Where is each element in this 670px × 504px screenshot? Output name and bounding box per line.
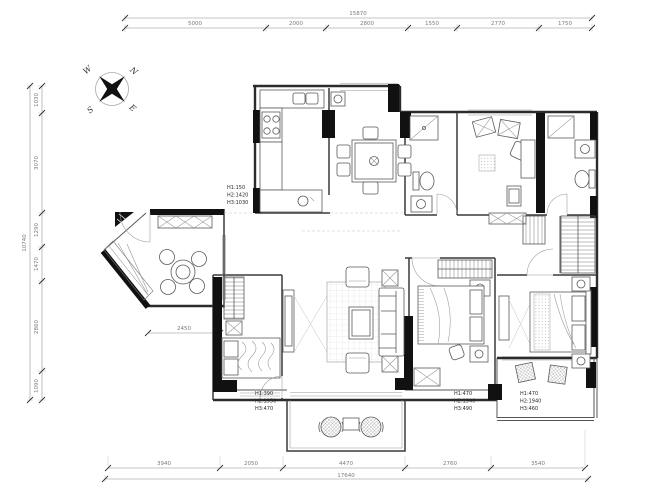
fridge-icon	[331, 92, 345, 106]
rug	[479, 155, 495, 171]
dim-top-seg1: 2000	[289, 21, 303, 27]
pillow	[470, 290, 482, 314]
dim-left-seg5: 1090	[34, 379, 40, 393]
rattan-chair	[321, 417, 341, 437]
headboard	[586, 290, 591, 354]
round-table	[171, 260, 195, 284]
blanket	[534, 294, 550, 350]
dim-top-seg4: 2770	[491, 21, 505, 27]
annotation-kitchen-l1: H1:150	[227, 185, 245, 191]
dim-left-seg2: 1290	[34, 223, 40, 237]
annotation-kitchen-l3: H3:1030	[227, 200, 248, 206]
bottom-dimension-chain: 17640 3940 2050 4470 2760 3540	[102, 430, 591, 482]
annotation-bedroom2-l2: H2:1940	[454, 399, 475, 405]
room-bedroom1	[222, 277, 294, 398]
desk	[521, 140, 535, 178]
coffee-table	[349, 307, 373, 339]
floor-plan-page: 15870 5000 2000 2800 1550 2770 1750 1074…	[0, 0, 670, 504]
annotation-master-l1: H1:470	[520, 391, 538, 397]
room-bathroom-right	[547, 116, 595, 214]
room-study	[472, 117, 535, 224]
blanket-fringe	[418, 288, 424, 342]
dim-bottom-seg2: 4470	[339, 461, 353, 467]
small-table	[343, 418, 359, 430]
nightstand	[572, 277, 590, 291]
cushion	[548, 365, 567, 384]
room-master	[499, 277, 591, 368]
dim-left-seg4: 2860	[34, 320, 40, 334]
compass-north-label: N	[127, 65, 140, 78]
chair	[160, 250, 175, 265]
pillow	[224, 341, 238, 357]
dim-top-seg3: 1550	[425, 21, 439, 27]
annotation-bedroom1-l1: H1:390	[255, 391, 273, 397]
dim-bottom-seg0: 3940	[157, 461, 171, 467]
dim-left-seg3: 1470	[34, 257, 40, 271]
left-dimension-chain: 10740 1030 3070 1290 1470 2860 1090	[22, 83, 46, 403]
dim-bottom-total: 17640	[337, 473, 355, 479]
annotation-master-l3: H3:460	[520, 406, 538, 412]
room-center-balcony	[319, 417, 383, 437]
cushion	[515, 362, 535, 382]
door-arc	[547, 194, 567, 214]
linen-cabinet	[523, 216, 545, 244]
dim-balcony-width: 2450	[177, 326, 191, 332]
dim-top-seg2: 2800	[360, 21, 374, 27]
annotation-bedroom1-l2: H2:1950	[255, 399, 276, 405]
dim-top-seg0: 5000	[188, 21, 202, 27]
compass-west-label: W	[81, 63, 94, 76]
compass-star-icon	[99, 76, 124, 101]
dim-left-seg0: 1030	[34, 93, 40, 107]
dining-chair	[337, 145, 350, 158]
compass: W N S E	[81, 63, 140, 115]
top-dimension-chain: 15870 5000 2000 2800 1550 2770 1750	[122, 11, 595, 32]
annotation-kitchen-l2: H2:1420	[227, 193, 248, 199]
toilet-icon	[413, 172, 419, 190]
compass-east-label: E	[127, 102, 138, 113]
room-balcony-left	[104, 212, 212, 300]
master-door-arc	[527, 249, 553, 275]
pillow	[572, 296, 585, 321]
sofa	[379, 288, 404, 356]
nightstand	[470, 346, 488, 362]
dim-bottom-seg4: 3540	[531, 461, 545, 467]
tv-cabinet	[499, 296, 509, 340]
balcony-width-dimension: 2450	[145, 326, 223, 336]
dim-left-seg1: 3070	[34, 156, 40, 170]
room-master-balcony	[515, 362, 567, 384]
annotation-master-l2: H2:1940	[520, 399, 541, 405]
dim-top-total: 15870	[349, 11, 367, 17]
rattan-chair	[361, 417, 381, 437]
room-kitchen	[260, 90, 345, 212]
dim-left-total: 10740	[22, 234, 28, 252]
room-living	[294, 267, 404, 373]
vanity-icon	[411, 196, 432, 212]
bedroom2-door-arc	[412, 258, 440, 286]
kitchen-sink-icon	[293, 93, 305, 104]
dim-top-seg5: 1750	[558, 21, 572, 27]
annotation-bedroom2-l1: H1:470	[454, 391, 472, 397]
room-bedroom2	[414, 260, 492, 386]
floor-plan-drawing: 15870 5000 2000 2800 1550 2770 1750 1074…	[0, 0, 670, 504]
door-arc	[437, 194, 457, 214]
room-bathroom-middle	[410, 116, 457, 214]
chair	[448, 344, 465, 361]
armchair	[346, 267, 369, 287]
dim-bottom-seg3: 2760	[443, 461, 457, 467]
shoe-cabinet	[489, 213, 526, 224]
toilet-icon	[589, 170, 595, 188]
vanity-icon	[575, 140, 595, 158]
room-dining	[337, 127, 411, 194]
compass-south-label: S	[85, 105, 95, 116]
annotation-bedroom2-l3: H3:490	[454, 406, 472, 412]
annotation-bedroom1-l3: H3:470	[255, 406, 273, 412]
dim-bottom-seg1: 2050	[244, 461, 258, 467]
